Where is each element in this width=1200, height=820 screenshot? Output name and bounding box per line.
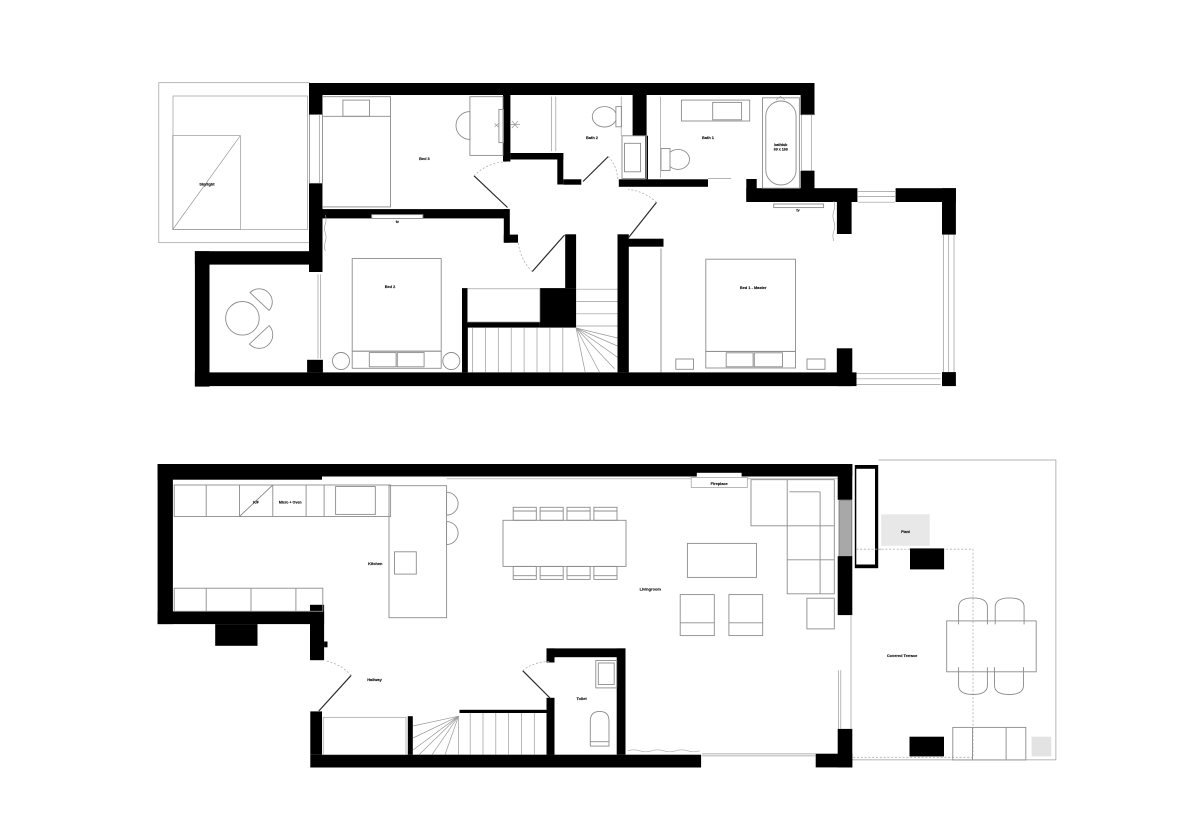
svg-text:Bed 2: Bed 2 [385,284,396,289]
svg-text:Covered Terrace: Covered Terrace [887,653,918,658]
svg-text:Bath 2: Bath 2 [586,135,599,140]
svg-text:Fireplace: Fireplace [711,481,729,486]
svg-text:K/F: K/F [253,500,260,504]
svg-text:Skylight: Skylight [199,181,215,186]
svg-text:Bed 1 - Master: Bed 1 - Master [740,285,767,290]
svg-text:Kitchen: Kitchen [368,561,383,566]
svg-text:Hallway: Hallway [367,677,382,682]
svg-text:69 x 168: 69 x 168 [774,148,788,152]
svg-text:Plant: Plant [901,530,911,534]
svg-text:Micro + Oven: Micro + Oven [279,500,302,504]
svg-text:Bath 1: Bath 1 [702,135,715,140]
svg-text:bathtub: bathtub [774,143,788,147]
svg-text:tv: tv [796,209,799,213]
svg-text:Toilet: Toilet [577,696,588,701]
svg-text:Bed 3: Bed 3 [419,156,430,161]
svg-text:Livingroom: Livingroom [640,586,662,591]
svg-text:tv: tv [396,220,399,224]
